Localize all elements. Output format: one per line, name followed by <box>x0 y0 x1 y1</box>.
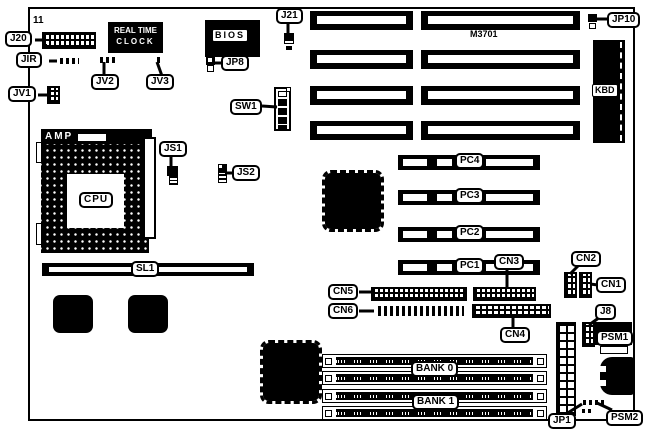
j21-callout: J21 <box>276 8 303 24</box>
kbd-label: KBD <box>592 84 618 97</box>
jp1-callout: JP1 <box>548 413 576 429</box>
cn5-callout: CN5 <box>328 284 358 300</box>
psm2-callout: PSM2 <box>606 410 643 426</box>
bank1-label: BANK 1 <box>412 394 459 410</box>
js2-callout: JS2 <box>232 165 260 181</box>
cn2-callout: CN2 <box>571 251 601 267</box>
cpu-label: CPU <box>79 192 113 208</box>
jp10-callout: JP10 <box>607 12 640 28</box>
js1-callout: JS1 <box>159 141 187 157</box>
jv2-callout: JV2 <box>91 74 119 90</box>
j8-callout: J8 <box>595 304 616 320</box>
motherboard-diagram: M3701 11 REAL TIME CLOCK BIOS KBD AMP CP… <box>0 0 649 439</box>
cn3-callout: CN3 <box>494 254 524 270</box>
pc3-label: PC3 <box>455 188 484 204</box>
pc1-label: PC1 <box>455 258 484 274</box>
jv1-callout: JV1 <box>8 86 36 102</box>
jv3-callout: JV3 <box>146 74 174 90</box>
j20-callout: J20 <box>5 31 32 47</box>
jir-callout: JIR <box>16 52 42 68</box>
cn6-callout: CN6 <box>328 303 358 319</box>
cn4-callout: CN4 <box>500 327 530 343</box>
callout-pointers <box>0 0 649 439</box>
sl1-label: SL1 <box>131 261 159 277</box>
bank0-label: BANK 0 <box>411 361 458 377</box>
sw1-callout: SW1 <box>230 99 262 115</box>
cn1-callout: CN1 <box>596 277 626 293</box>
bios-label: BIOS <box>212 29 248 42</box>
jp8-callout: JP8 <box>221 55 249 71</box>
pc4-label: PC4 <box>455 153 484 169</box>
psm1-callout: PSM1 <box>596 330 633 346</box>
pc2-label: PC2 <box>455 225 484 241</box>
